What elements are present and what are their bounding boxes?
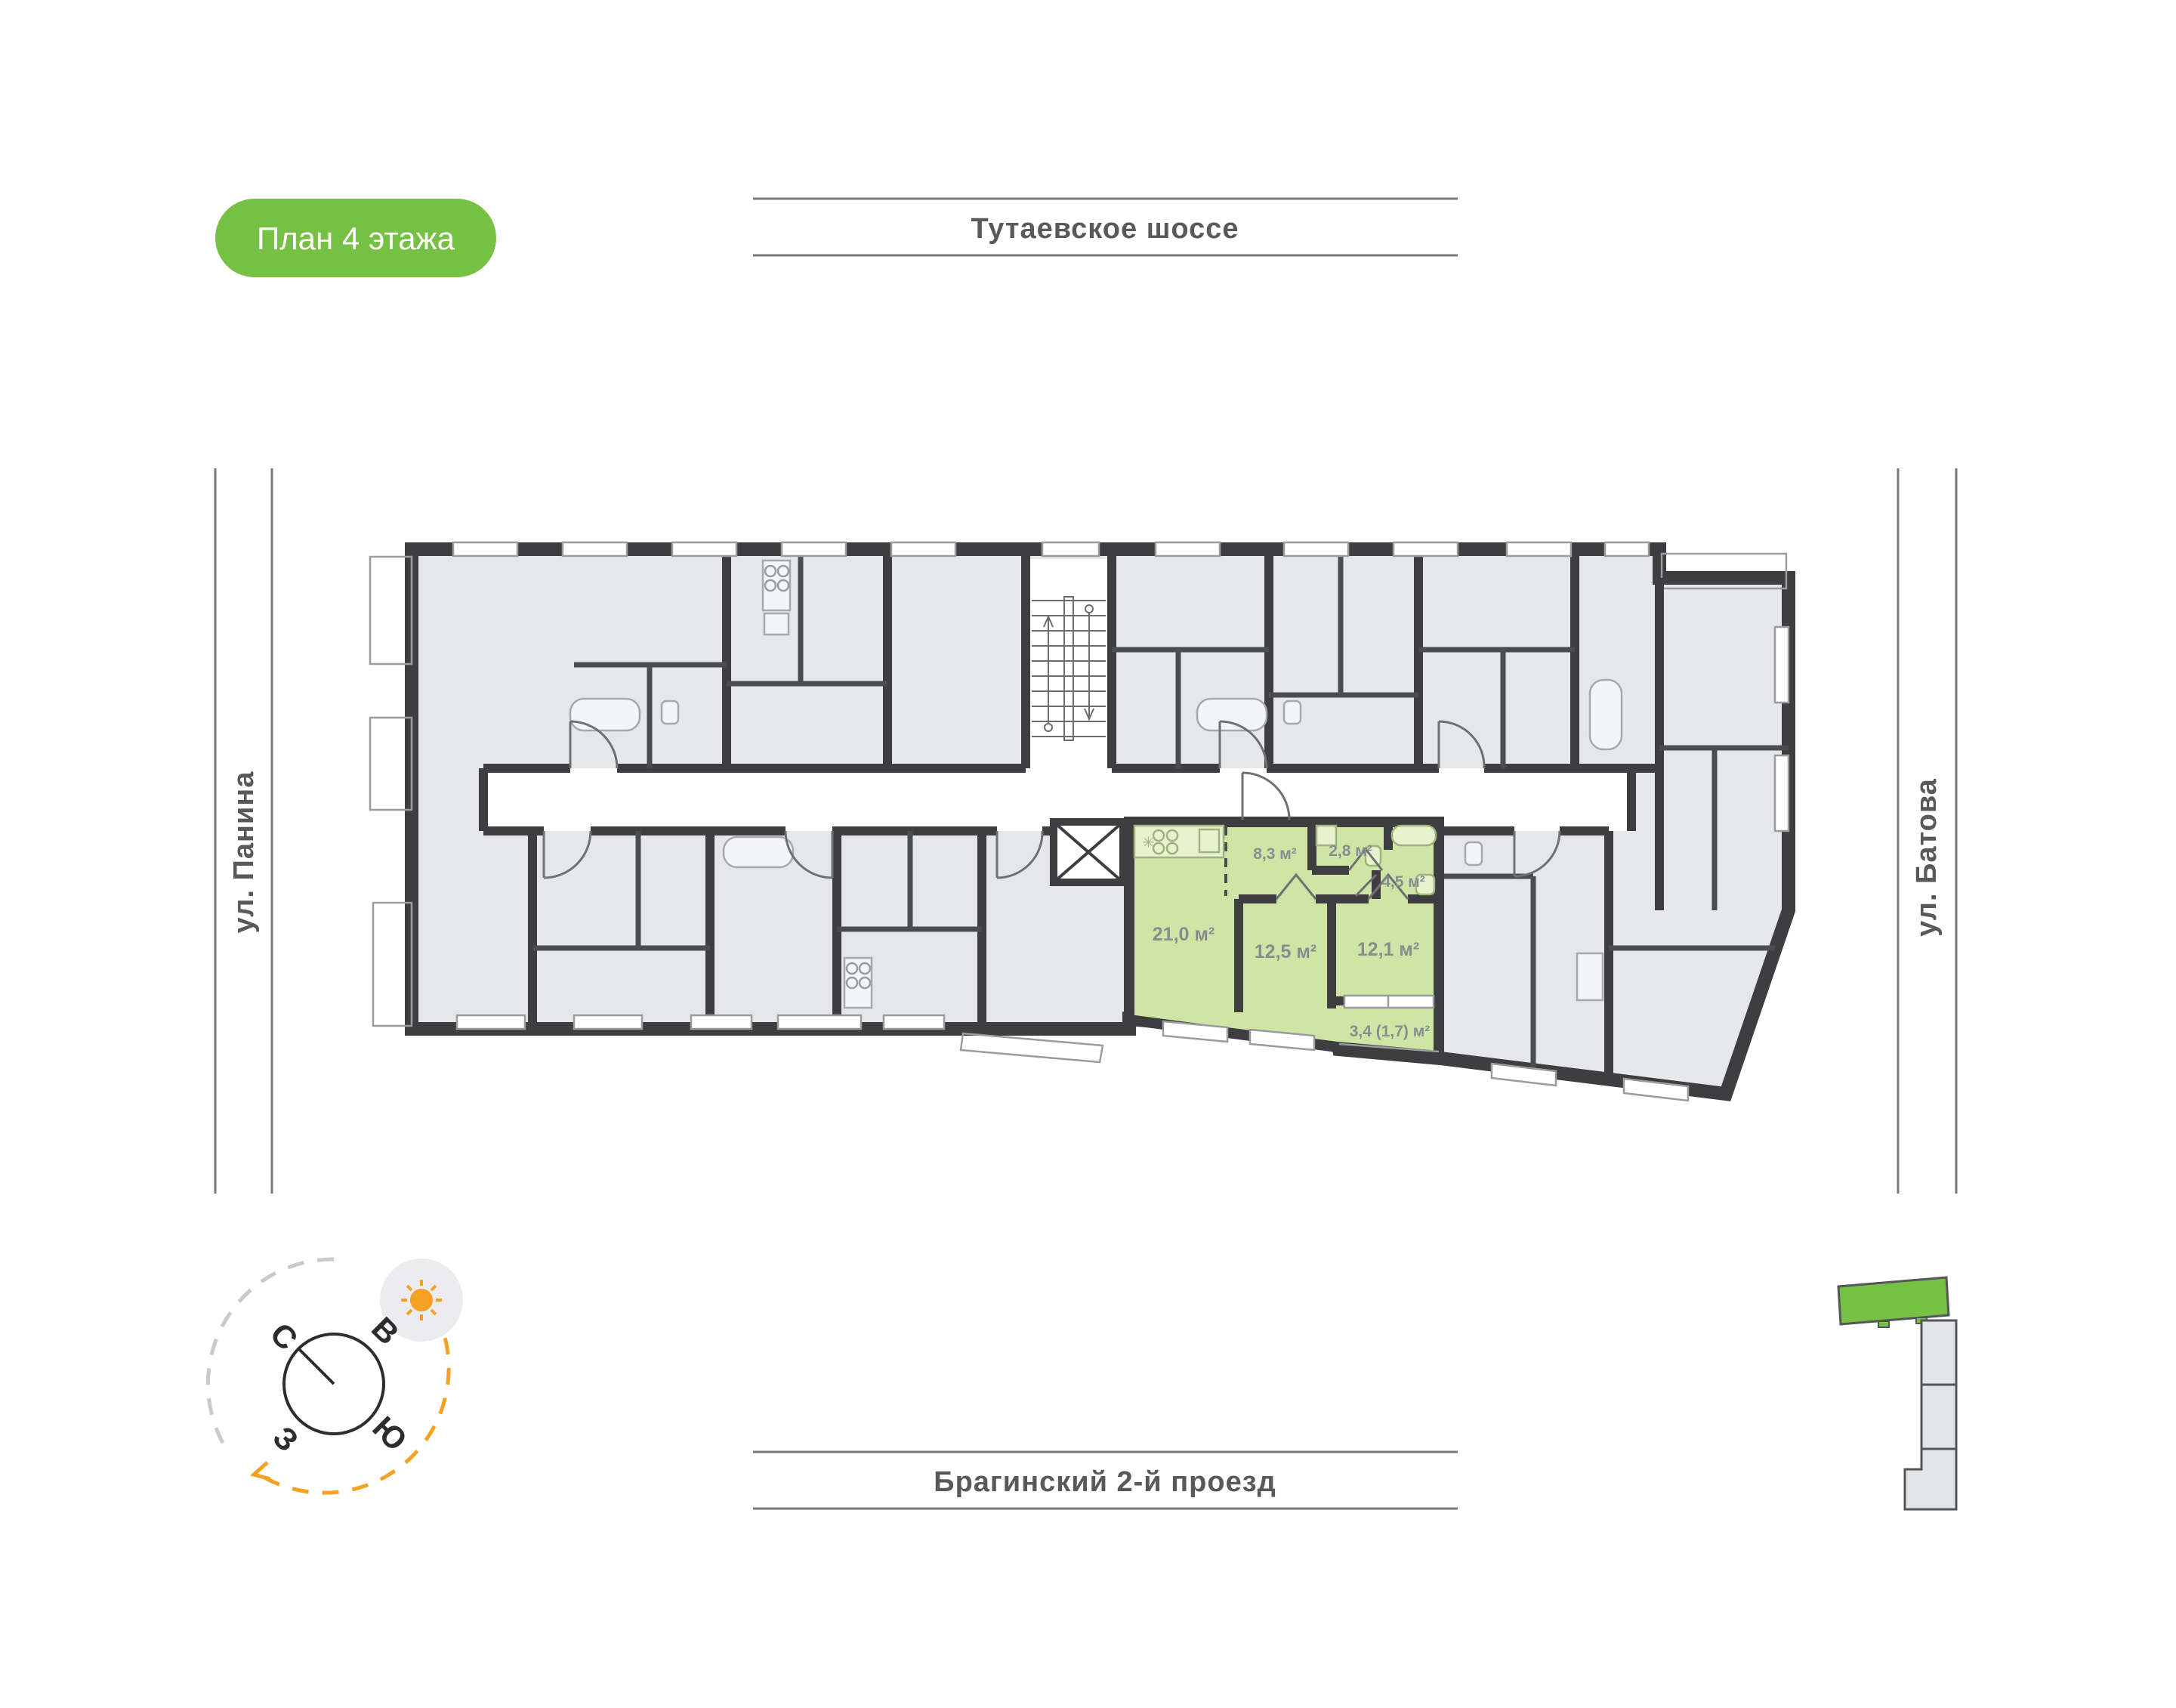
minimap-building-section bbox=[1905, 1449, 1956, 1509]
minimap-building-section bbox=[1921, 1320, 1956, 1385]
stove-icon bbox=[1577, 953, 1603, 1000]
bathtub-icon bbox=[724, 837, 793, 867]
bathtub-icon bbox=[1590, 680, 1622, 749]
sink-icon bbox=[1199, 829, 1219, 852]
fridge-icon: ✳ bbox=[1142, 835, 1155, 851]
street-bottom-label: Брагинский 2-й проезд bbox=[934, 1466, 1276, 1498]
floor-plan: ✳ bbox=[370, 542, 1789, 1101]
street-left: ул. Панина bbox=[215, 468, 272, 1194]
room-label-bathroom: 2,8 м² bbox=[1329, 842, 1372, 860]
street-bottom: Брагинский 2-й проезд bbox=[753, 1452, 1458, 1509]
toilet-icon bbox=[1284, 701, 1301, 724]
street-right-label: ул. Батова bbox=[1911, 778, 1943, 937]
minimap-current-building bbox=[1838, 1277, 1949, 1324]
room-label-bedroom: 12,5 м² bbox=[1255, 941, 1316, 962]
floor-badge-label: План 4 этажа bbox=[257, 221, 455, 256]
street-top: Тутаевское шоссе bbox=[753, 199, 1458, 255]
balcony-bottom-center bbox=[961, 1033, 1103, 1062]
room-label-bedroom-2: 12,1 м² bbox=[1357, 939, 1419, 960]
compass-arrowhead bbox=[254, 1462, 270, 1479]
compass: С В Ю З bbox=[208, 1259, 463, 1493]
room-label-kitchen-living: 21,0 м² bbox=[1153, 924, 1215, 945]
sink-icon bbox=[764, 613, 789, 635]
street-top-label: Тутаевское шоссе bbox=[971, 213, 1239, 245]
elevator bbox=[1054, 822, 1123, 882]
minimap-building-section bbox=[1921, 1385, 1956, 1449]
floor-badge: План 4 этажа bbox=[215, 199, 496, 277]
room-label-balcony: 3,4 (1,7) м² bbox=[1350, 1023, 1431, 1040]
bathtub-icon bbox=[570, 699, 640, 730]
toilet-icon bbox=[1465, 842, 1482, 865]
compass-west: З bbox=[266, 1419, 305, 1459]
bathtub-icon bbox=[1197, 699, 1267, 730]
location-minimap bbox=[1838, 1277, 1956, 1509]
apartment-kitchen: ✳ bbox=[1134, 826, 1224, 857]
room-label-hallway: 8,3 м² bbox=[1253, 845, 1297, 863]
street-right: ул. Батова bbox=[1898, 468, 1956, 1194]
minimap-notch bbox=[1878, 1321, 1889, 1327]
street-left-label: ул. Панина bbox=[228, 771, 260, 934]
stairwell bbox=[1026, 559, 1112, 771]
toilet-icon bbox=[662, 701, 678, 724]
room-label-bathroom-2: 4,5 м² bbox=[1381, 873, 1425, 891]
bathtub-icon bbox=[1392, 826, 1436, 845]
